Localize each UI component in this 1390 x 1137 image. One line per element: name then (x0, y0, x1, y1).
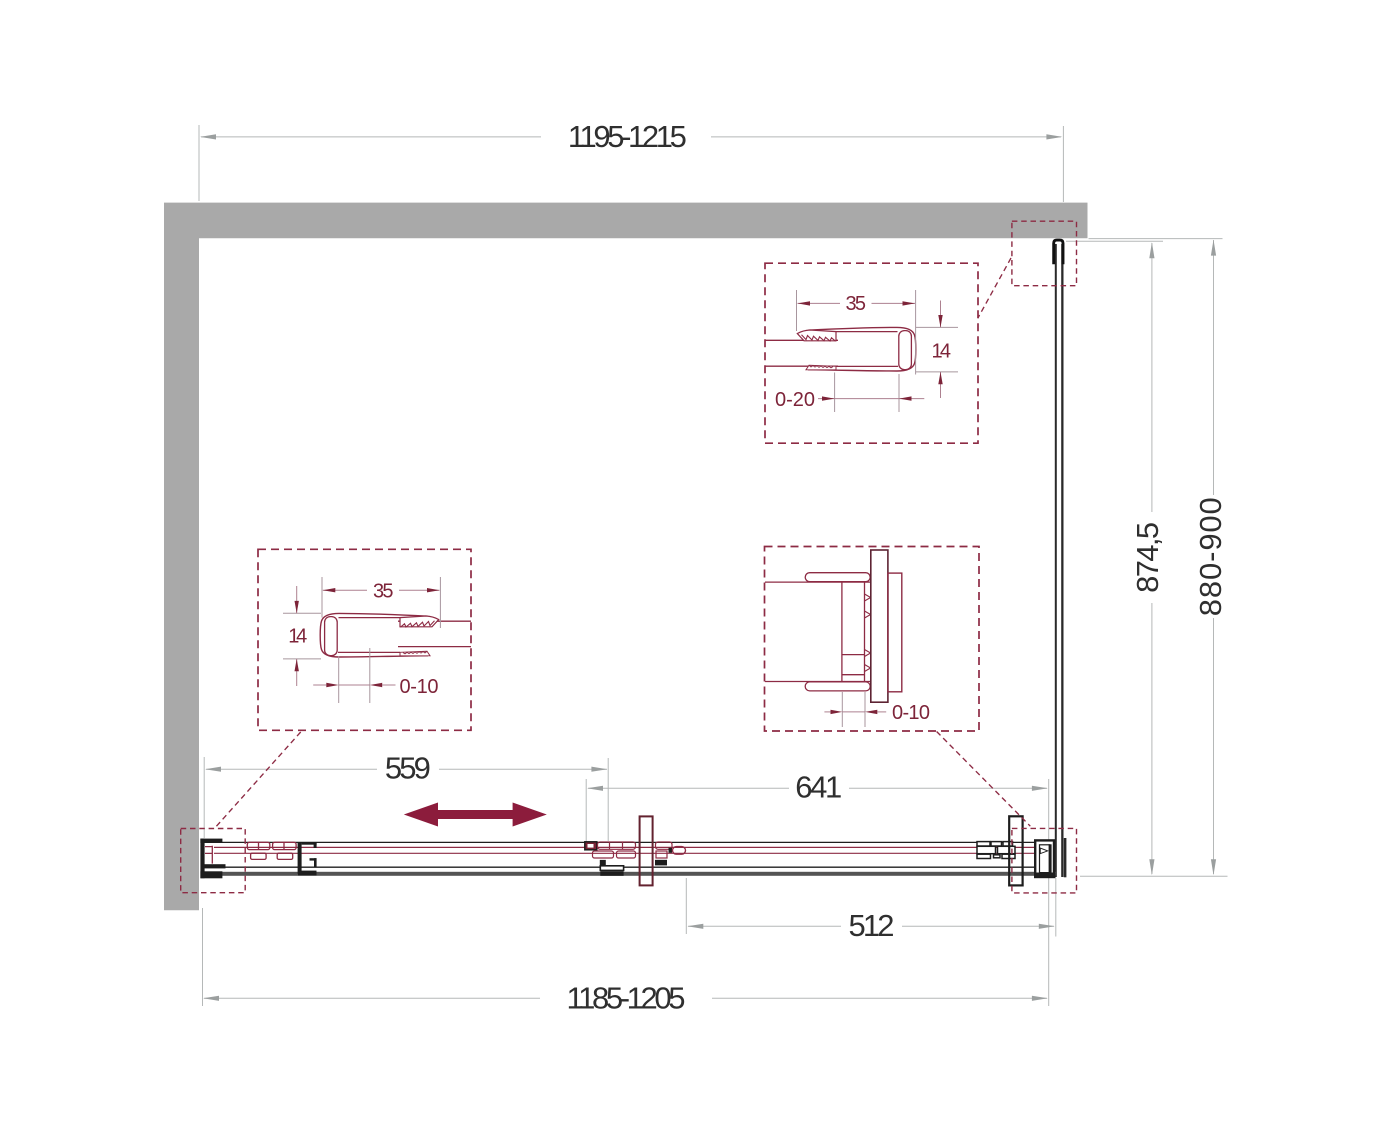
svg-text:512: 512 (849, 908, 895, 943)
svg-text:35: 35 (845, 293, 866, 315)
svg-text:0-20: 0-20 (775, 389, 815, 411)
svg-text:874,5: 874,5 (1130, 522, 1165, 593)
svg-text:0-10: 0-10 (892, 702, 930, 724)
svg-text:1185-1205: 1185-1205 (567, 981, 686, 1016)
svg-text:641: 641 (795, 770, 842, 805)
svg-text:1195-1215: 1195-1215 (568, 119, 687, 154)
svg-text:559: 559 (385, 750, 431, 785)
svg-text:35: 35 (373, 580, 394, 602)
svg-text:14: 14 (931, 340, 951, 362)
svg-text:0-10: 0-10 (400, 676, 439, 698)
svg-text:14: 14 (288, 626, 307, 648)
svg-text:880-900: 880-900 (1193, 497, 1228, 616)
